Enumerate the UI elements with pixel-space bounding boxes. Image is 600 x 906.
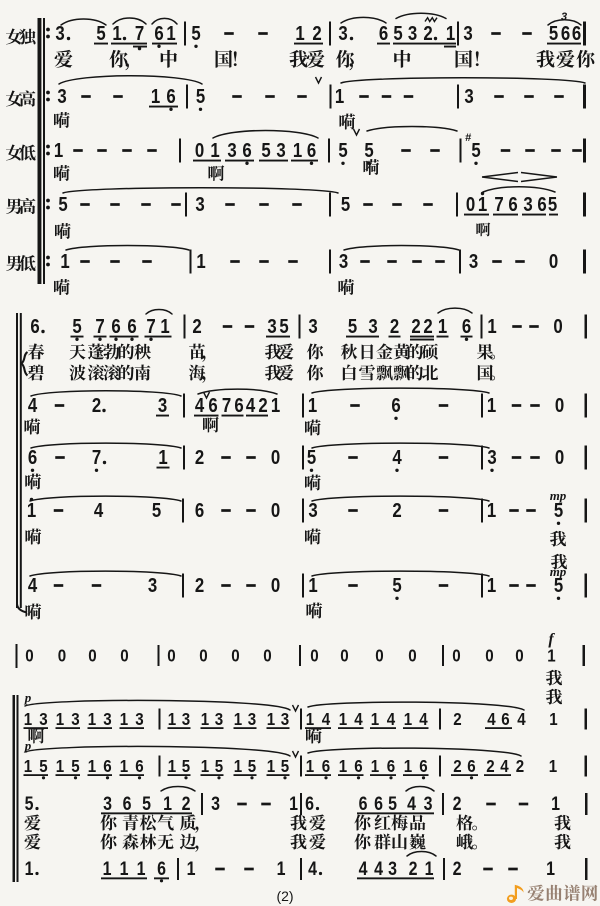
svg-text:1: 1 — [446, 22, 455, 45]
svg-text:5: 5 — [548, 193, 557, 216]
svg-text:5: 5 — [58, 193, 67, 216]
svg-text:5: 5 — [341, 193, 350, 216]
svg-text:6: 6 — [157, 858, 166, 880]
svg-text:1: 1 — [160, 315, 169, 338]
svg-text:6: 6 — [379, 22, 388, 45]
svg-text:3: 3 — [463, 22, 472, 45]
svg-text:5: 5 — [72, 315, 81, 338]
svg-text:6: 6 — [30, 315, 39, 338]
svg-text:6: 6 — [359, 793, 368, 815]
svg-text:4: 4 — [308, 858, 317, 880]
svg-text:6: 6 — [537, 193, 546, 216]
svg-text:1: 1 — [404, 709, 412, 730]
svg-text:0: 0 — [375, 645, 383, 666]
svg-text:1: 1 — [487, 315, 496, 338]
svg-text:5: 5 — [549, 22, 558, 45]
svg-text:4: 4 — [517, 709, 526, 730]
svg-text:2: 2 — [423, 22, 432, 45]
svg-text:1: 1 — [54, 139, 63, 162]
svg-text:4: 4 — [28, 574, 38, 597]
svg-text:6: 6 — [508, 193, 517, 216]
svg-text:1: 1 — [271, 394, 280, 417]
svg-text:3: 3 — [248, 709, 256, 730]
svg-text:3: 3 — [55, 22, 64, 45]
svg-text:1: 1 — [371, 709, 379, 730]
svg-text:1: 1 — [56, 756, 64, 777]
svg-text:6: 6 — [154, 22, 163, 45]
svg-text:1: 1 — [295, 22, 304, 45]
svg-text:0: 0 — [271, 499, 280, 522]
svg-text:0: 0 — [553, 315, 562, 338]
svg-text:0: 0 — [452, 645, 460, 666]
svg-text:3: 3 — [308, 499, 317, 522]
svg-text:3: 3 — [195, 193, 204, 216]
svg-text:1: 1 — [293, 139, 302, 162]
svg-text:0: 0 — [466, 193, 475, 216]
svg-text:3: 3 — [227, 139, 236, 162]
svg-text:3: 3 — [276, 139, 285, 162]
svg-text:1: 1 — [551, 793, 560, 815]
svg-text:2: 2 — [453, 858, 462, 880]
svg-text:3: 3 — [339, 250, 348, 273]
svg-text:6: 6 — [391, 394, 400, 417]
svg-text:5: 5 — [191, 22, 200, 45]
svg-text:3: 3 — [182, 709, 190, 730]
svg-text:1: 1 — [487, 574, 496, 597]
svg-text:5: 5 — [196, 85, 205, 108]
svg-text:4: 4 — [487, 709, 496, 730]
svg-text:1: 1 — [487, 499, 496, 522]
svg-text:1: 1 — [547, 645, 555, 666]
svg-text:4: 4 — [500, 756, 509, 777]
svg-text:5: 5 — [388, 793, 397, 815]
svg-text:3: 3 — [338, 22, 347, 45]
svg-text:1: 1 — [339, 756, 347, 777]
svg-text:2: 2 — [486, 756, 494, 777]
svg-text:6: 6 — [127, 315, 136, 338]
svg-text:7: 7 — [92, 446, 101, 469]
svg-text:4: 4 — [392, 446, 402, 469]
svg-text:1: 1 — [234, 756, 242, 777]
svg-text:6: 6 — [242, 139, 251, 162]
svg-text:7: 7 — [222, 394, 231, 417]
svg-text:1: 1 — [546, 858, 555, 880]
svg-text:6: 6 — [307, 139, 316, 162]
svg-text:mp: mp — [550, 564, 567, 579]
svg-text:#: # — [465, 132, 472, 144]
svg-text:2: 2 — [258, 394, 267, 417]
svg-text:2: 2 — [195, 574, 204, 597]
svg-text:1: 1 — [438, 315, 447, 338]
svg-text:1: 1 — [88, 756, 96, 777]
svg-text:7: 7 — [95, 315, 104, 338]
svg-text:1: 1 — [88, 709, 96, 730]
svg-text:1: 1 — [56, 709, 64, 730]
svg-text:3: 3 — [408, 22, 417, 45]
svg-text:3: 3 — [464, 85, 473, 108]
svg-text:6: 6 — [103, 756, 111, 777]
svg-text:7: 7 — [494, 193, 503, 216]
svg-text:6: 6 — [322, 756, 330, 777]
svg-text:5: 5 — [39, 756, 47, 777]
svg-text:1: 1 — [60, 250, 69, 273]
svg-text:6: 6 — [123, 793, 132, 815]
svg-text:2: 2 — [453, 709, 461, 730]
svg-text:1: 1 — [478, 193, 487, 216]
svg-text:6: 6 — [111, 315, 120, 338]
svg-text:3: 3 — [148, 574, 157, 597]
svg-text:0: 0 — [271, 574, 280, 597]
svg-text:1: 1 — [24, 756, 32, 777]
svg-text:5: 5 — [71, 756, 79, 777]
svg-text:0: 0 — [340, 645, 348, 666]
svg-text:6: 6 — [234, 394, 243, 417]
svg-text:3: 3 — [135, 709, 143, 730]
svg-text:4: 4 — [354, 709, 363, 730]
svg-text:6: 6 — [166, 85, 175, 108]
svg-text:3: 3 — [561, 11, 567, 23]
svg-text:2: 2 — [192, 315, 201, 338]
svg-text:3: 3 — [57, 85, 66, 108]
svg-text:5: 5 — [182, 756, 190, 777]
svg-text:3: 3 — [158, 394, 167, 417]
svg-text:mp: mp — [550, 488, 567, 503]
svg-text:3: 3 — [424, 793, 433, 815]
svg-text:0: 0 — [485, 645, 493, 666]
svg-text:3: 3 — [281, 709, 289, 730]
svg-text:1: 1 — [201, 756, 209, 777]
svg-text:4: 4 — [28, 394, 38, 417]
svg-text:3: 3 — [487, 446, 496, 469]
svg-text:1: 1 — [339, 709, 347, 730]
svg-text:3: 3 — [103, 793, 112, 815]
svg-text:2: 2 — [390, 315, 399, 338]
svg-text:1: 1 — [27, 499, 36, 522]
svg-text:6: 6 — [305, 793, 314, 815]
svg-text:4: 4 — [359, 858, 368, 880]
svg-text:1: 1 — [308, 394, 317, 417]
svg-text:1: 1 — [289, 793, 298, 815]
svg-text:0: 0 — [167, 645, 175, 666]
svg-text:1: 1 — [120, 756, 128, 777]
svg-text:2: 2 — [312, 22, 321, 45]
svg-text:1: 1 — [234, 709, 242, 730]
svg-text:1: 1 — [335, 85, 344, 108]
svg-text:5: 5 — [338, 139, 347, 162]
svg-text:0: 0 — [555, 446, 564, 469]
svg-text:4: 4 — [94, 499, 104, 522]
svg-text:0: 0 — [231, 645, 239, 666]
svg-text:1: 1 — [201, 709, 209, 730]
svg-text:3: 3 — [211, 793, 220, 815]
svg-text:p: p — [24, 690, 32, 705]
svg-text:1: 1 — [549, 709, 557, 730]
svg-text:1: 1 — [277, 858, 286, 880]
svg-text:6: 6 — [462, 315, 471, 338]
svg-text:0: 0 — [120, 645, 128, 666]
svg-text:6: 6 — [208, 394, 217, 417]
svg-text:6: 6 — [195, 499, 204, 522]
svg-text:4: 4 — [387, 709, 396, 730]
svg-text:6: 6 — [135, 756, 143, 777]
svg-text:1: 1 — [267, 709, 275, 730]
svg-text:1: 1 — [168, 756, 176, 777]
svg-text:5: 5 — [248, 756, 256, 777]
svg-text:2: 2 — [453, 793, 462, 815]
svg-text:0: 0 — [58, 645, 66, 666]
svg-text:0: 0 — [408, 645, 416, 666]
svg-text:5: 5 — [279, 315, 288, 338]
svg-text:0: 0 — [271, 446, 280, 469]
svg-text:0: 0 — [555, 394, 564, 417]
svg-text:3: 3 — [215, 709, 223, 730]
svg-text:6: 6 — [374, 793, 383, 815]
svg-text:6: 6 — [572, 22, 581, 45]
svg-text:1: 1 — [163, 793, 172, 815]
svg-text:5: 5 — [392, 574, 401, 597]
svg-text:2: 2 — [92, 394, 101, 417]
svg-text:6: 6 — [561, 22, 570, 45]
svg-text:2: 2 — [453, 756, 461, 777]
svg-text:1: 1 — [112, 22, 121, 45]
svg-text:6: 6 — [387, 756, 395, 777]
svg-text:1: 1 — [549, 756, 557, 777]
svg-text:0: 0 — [549, 250, 558, 273]
svg-text:7: 7 — [135, 22, 144, 45]
svg-text:0: 0 — [199, 645, 207, 666]
svg-text:0: 0 — [310, 645, 318, 666]
svg-text:6: 6 — [419, 756, 427, 777]
svg-text:2: 2 — [195, 446, 204, 469]
svg-text:3: 3 — [308, 315, 317, 338]
svg-text:3: 3 — [388, 858, 397, 880]
svg-text:4: 4 — [419, 709, 428, 730]
svg-text:1: 1 — [24, 709, 32, 730]
svg-text:5: 5 — [261, 139, 270, 162]
svg-text:6: 6 — [28, 446, 37, 469]
svg-text:2: 2 — [409, 858, 418, 880]
svg-text:3: 3 — [39, 709, 47, 730]
svg-text:4: 4 — [246, 394, 256, 417]
svg-text:5: 5 — [142, 793, 151, 815]
svg-text:1: 1 — [487, 394, 496, 417]
svg-text:7: 7 — [146, 315, 155, 338]
svg-text:1: 1 — [151, 85, 160, 108]
svg-text:1: 1 — [120, 858, 129, 880]
svg-text:4: 4 — [322, 709, 331, 730]
svg-text:1: 1 — [103, 858, 112, 880]
svg-text:0: 0 — [515, 645, 523, 666]
svg-text:3: 3 — [267, 315, 276, 338]
svg-text:2: 2 — [182, 793, 191, 815]
svg-text:1: 1 — [166, 22, 175, 45]
svg-text:1: 1 — [267, 756, 275, 777]
svg-text:4: 4 — [407, 793, 416, 815]
svg-text:3: 3 — [71, 709, 79, 730]
svg-text:3: 3 — [523, 193, 532, 216]
svg-text:0: 0 — [88, 645, 96, 666]
svg-text:4: 4 — [195, 394, 205, 417]
svg-text:1: 1 — [371, 756, 379, 777]
svg-text:1: 1 — [137, 858, 146, 880]
svg-text:1: 1 — [425, 858, 434, 880]
svg-text:6: 6 — [501, 709, 509, 730]
svg-text:0: 0 — [25, 645, 33, 666]
svg-text:5: 5 — [364, 139, 373, 162]
svg-text:5: 5 — [471, 139, 480, 162]
svg-text:5: 5 — [215, 756, 223, 777]
svg-text:5: 5 — [307, 446, 316, 469]
svg-text:1: 1 — [120, 709, 128, 730]
svg-text:5: 5 — [25, 793, 34, 815]
svg-text:2: 2 — [392, 499, 401, 522]
svg-text:3: 3 — [103, 709, 111, 730]
svg-text:1: 1 — [196, 250, 205, 273]
svg-text:5: 5 — [96, 22, 105, 45]
svg-text:5: 5 — [393, 22, 402, 45]
svg-text:1: 1 — [187, 858, 196, 880]
svg-text:1: 1 — [306, 756, 314, 777]
svg-text:1: 1 — [210, 139, 219, 162]
svg-text:5: 5 — [152, 499, 161, 522]
svg-text:0: 0 — [195, 139, 204, 162]
svg-text:1: 1 — [308, 574, 317, 597]
svg-text:2: 2 — [411, 315, 420, 338]
svg-text:2: 2 — [516, 756, 524, 777]
svg-text:3: 3 — [368, 315, 377, 338]
svg-text:1: 1 — [158, 446, 167, 469]
svg-text:4: 4 — [374, 858, 383, 880]
svg-text:6: 6 — [354, 756, 362, 777]
svg-text:5: 5 — [348, 315, 357, 338]
svg-text:1: 1 — [306, 709, 314, 730]
svg-text:1: 1 — [404, 756, 412, 777]
svg-text:6: 6 — [467, 756, 475, 777]
svg-text:3: 3 — [469, 250, 478, 273]
svg-text:1: 1 — [25, 858, 34, 880]
svg-text:1: 1 — [168, 709, 176, 730]
svg-text:5: 5 — [281, 756, 289, 777]
svg-text:(2): (2) — [276, 888, 293, 904]
svg-text:2: 2 — [423, 315, 432, 338]
svg-text:0: 0 — [263, 645, 271, 666]
